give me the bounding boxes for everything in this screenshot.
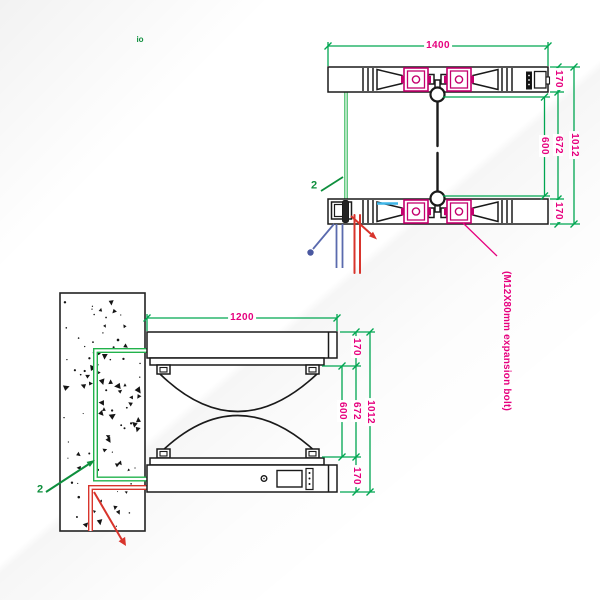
dim-top-inner: 672 (553, 134, 563, 156)
pivot-post (431, 88, 445, 102)
installation-drawing: 1400 170 600 672 1012 170 1200 170 600 6… (0, 0, 600, 600)
callout-2-front-view: 2 (37, 485, 43, 496)
callout-2-top-view: 2 (311, 181, 317, 192)
cables-blue (307, 224, 342, 268)
bolt-note-leader (463, 223, 497, 256)
upper-flap-wing (160, 374, 317, 412)
corner-marker: io (136, 36, 143, 44)
green-callout-line (321, 177, 343, 191)
dim-front-lane: 600 (337, 400, 347, 422)
cable-connector (343, 201, 349, 223)
bolt-note: (M12X80mm expansion bolt) (501, 271, 511, 411)
top-view (307, 42, 580, 273)
top-cabinet-front (147, 332, 337, 358)
pivot-post (431, 192, 445, 206)
cable-end-dot (307, 249, 313, 255)
dim-front-total: 1012 (365, 398, 375, 426)
lower-flap-wing (160, 416, 317, 454)
reader-window (277, 471, 302, 488)
dim-front-offset-top: 170 (351, 336, 361, 358)
cable-green-run (344, 84, 348, 211)
front-cabinets (147, 332, 337, 492)
top-cabinet-plan (328, 67, 550, 102)
dim-top-width: 1400 (424, 41, 452, 51)
dim-top-offset-top: 170 (553, 68, 563, 90)
dim-top-total: 1012 (569, 131, 579, 159)
dim-front-width: 1200 (228, 313, 256, 323)
dim-top-lane: 600 (539, 135, 549, 157)
dim-front-inner: 672 (351, 400, 361, 422)
dim-front-offset-bot: 170 (351, 465, 361, 487)
front-view (46, 293, 375, 546)
wall-section (60, 293, 145, 531)
dim-top-offset-bot: 170 (553, 200, 563, 222)
